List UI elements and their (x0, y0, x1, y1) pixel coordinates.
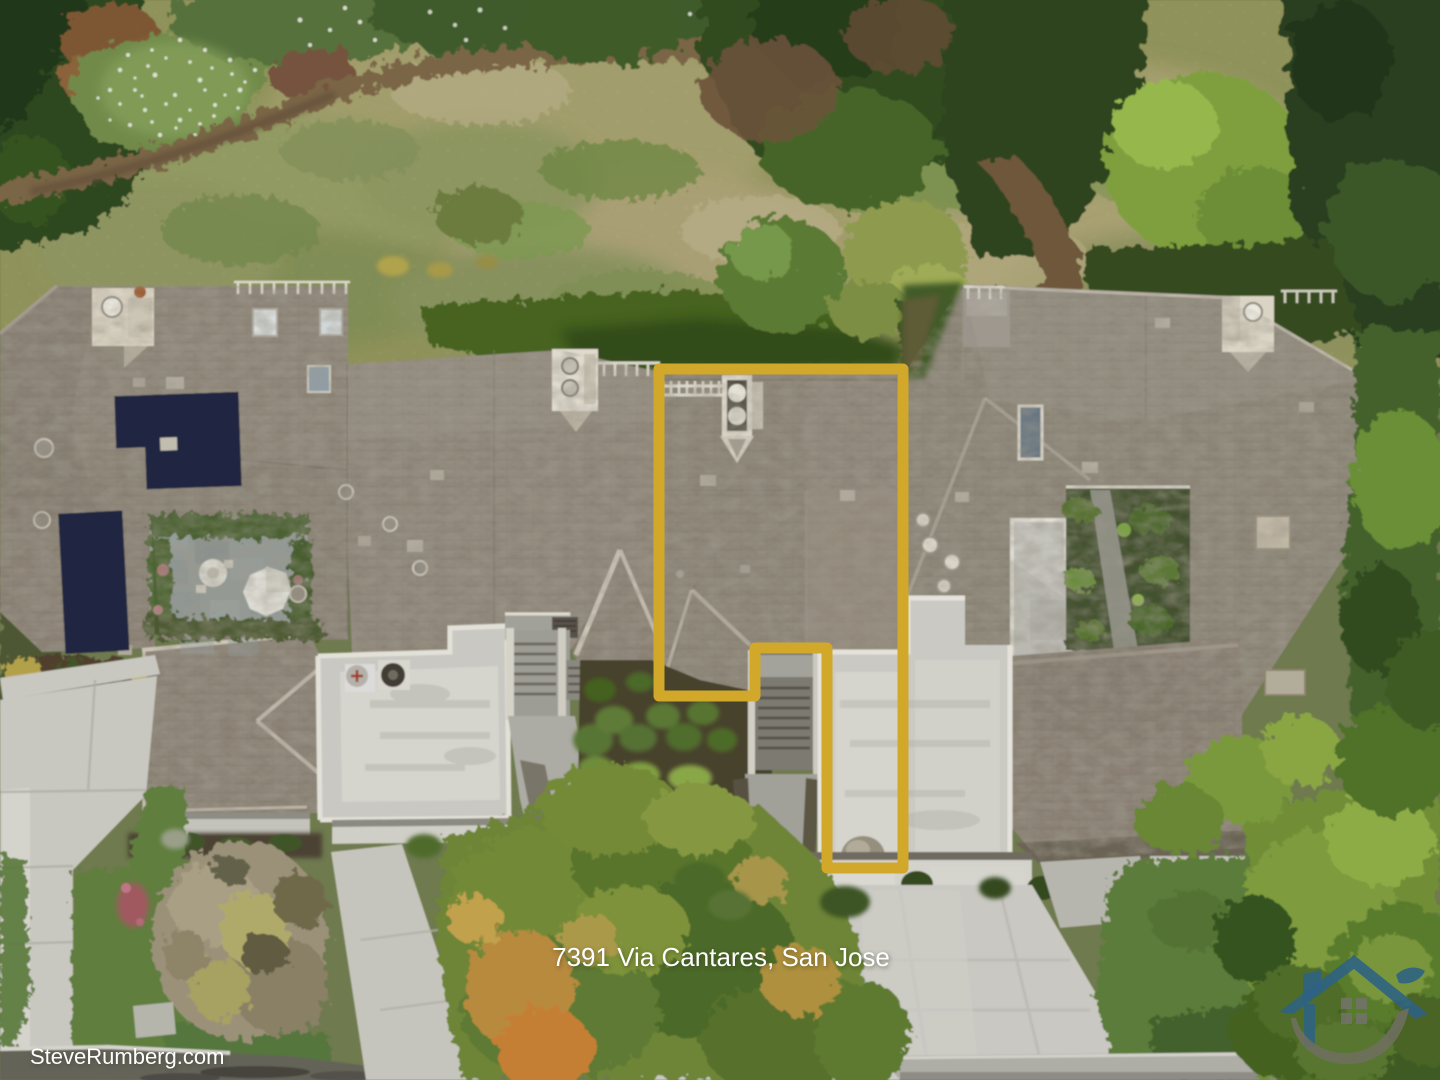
svg-text:7391 Via Cantares, San Jose: 7391 Via Cantares, San Jose (552, 942, 890, 972)
svg-text:SteveRumberg.com: SteveRumberg.com (30, 1044, 224, 1069)
